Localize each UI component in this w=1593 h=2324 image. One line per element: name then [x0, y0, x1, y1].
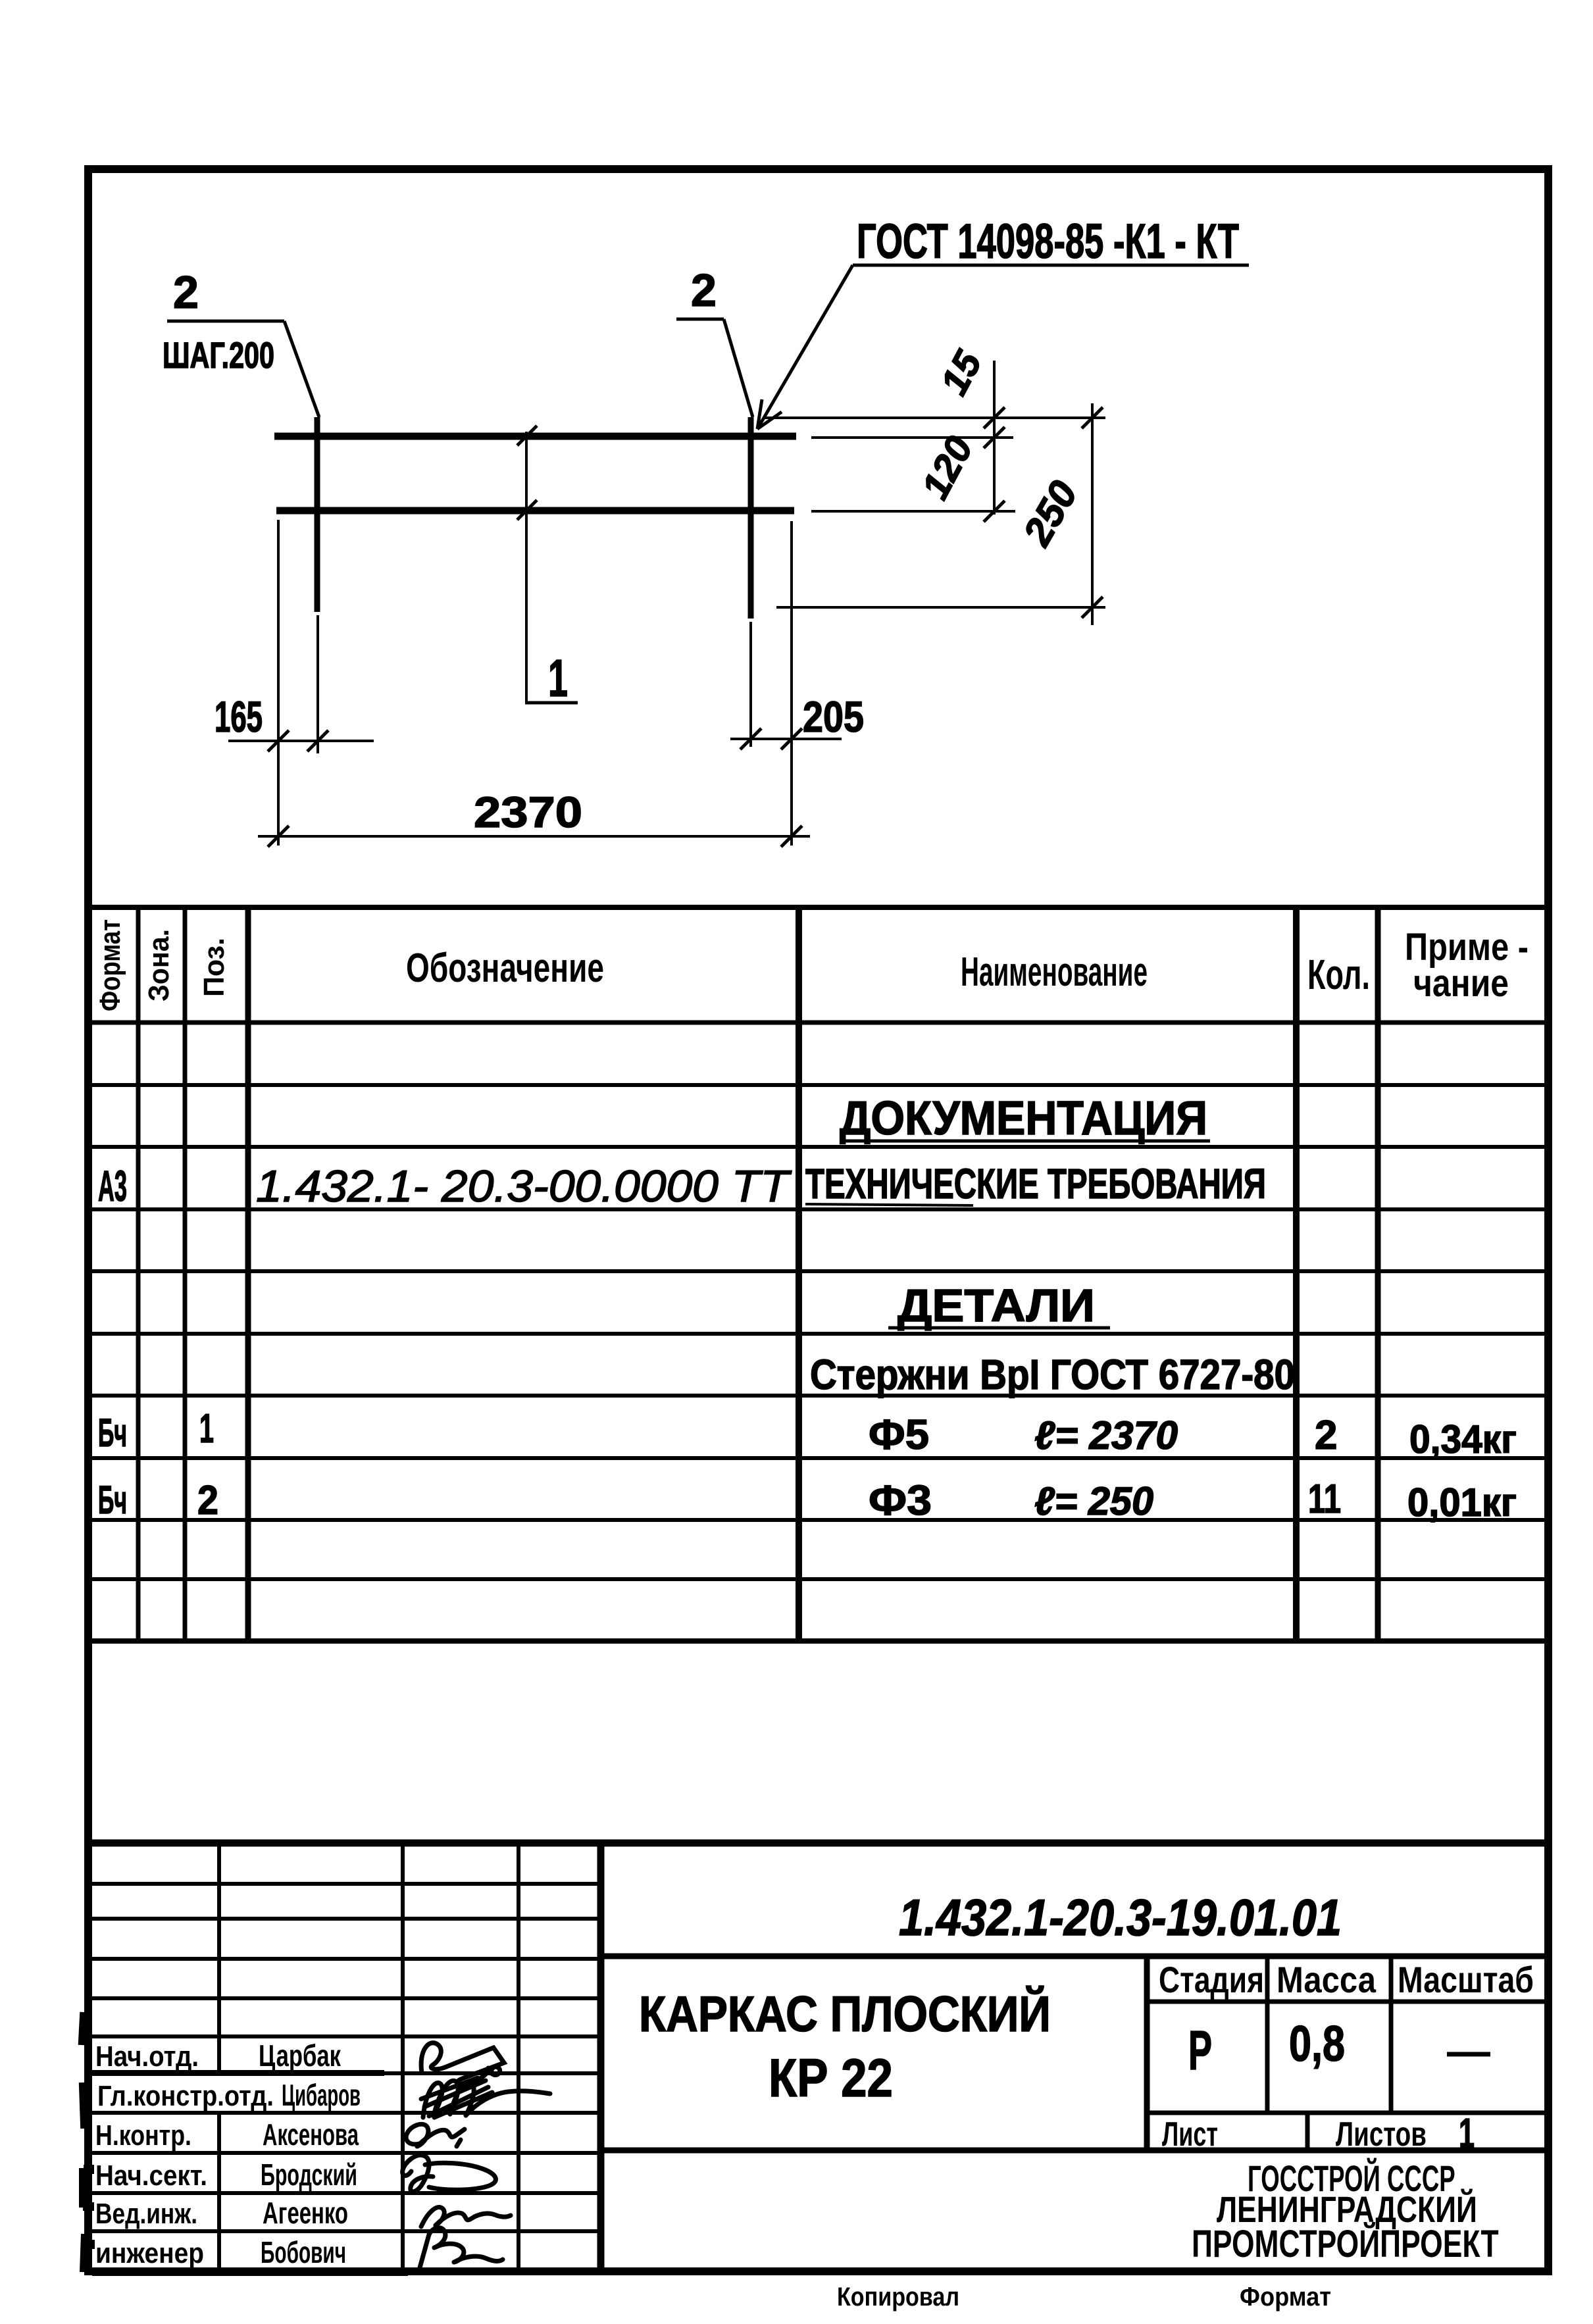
svg-text:2: 2 — [197, 1478, 218, 1523]
svg-text:КР 22: КР 22 — [769, 2048, 893, 2108]
svg-text:Стержни ВрI ГОСТ 6727-80: Стержни ВрI ГОСТ 6727-80 — [810, 1351, 1295, 1398]
svg-text:2: 2 — [691, 265, 717, 316]
svg-text:ДЕТАЛИ: ДЕТАЛИ — [898, 1280, 1095, 1331]
svg-text:2370: 2370 — [474, 788, 582, 836]
svg-text:Бч: Бч — [98, 1411, 127, 1455]
svg-text:ТЕХНИЧЕСКИЕ ТРЕБОВАНИЯ: ТЕХНИЧЕСКИЕ ТРЕБОВАНИЯ — [805, 1160, 1266, 1207]
svg-text:чание: чание — [1413, 962, 1509, 1005]
svg-text:1: 1 — [548, 649, 568, 707]
svg-text:ℓ= 250: ℓ= 250 — [1034, 1479, 1153, 1523]
svg-text:ДОКУМЕНТАЦИЯ: ДОКУМЕНТАЦИЯ — [840, 1092, 1207, 1145]
svg-text:Лист: Лист — [1162, 2115, 1218, 2154]
svg-text:Формат: Формат — [1240, 2283, 1331, 2311]
svg-text:Ф5: Ф5 — [869, 1411, 929, 1458]
svg-text:0,8: 0,8 — [1289, 2016, 1345, 2072]
svg-text:Формат: Формат — [94, 919, 126, 1011]
svg-text:Н.контр.: Н.контр. — [95, 2119, 191, 2152]
svg-text:165: 165 — [215, 692, 263, 741]
svg-text:Нач.сект.: Нач.сект. — [95, 2160, 207, 2192]
svg-text:Агеенко: Агеенко — [263, 2196, 348, 2230]
svg-text:2: 2 — [173, 266, 199, 318]
svg-text:Кол.: Кол. — [1307, 951, 1370, 998]
svg-text:ПРОМСТРОЙПРОЕКТ: ПРОМСТРОЙПРОЕКТ — [1192, 2222, 1499, 2265]
svg-text:Наименование: Наименование — [961, 949, 1148, 995]
svg-text:Ф3: Ф3 — [869, 1477, 932, 1524]
svg-text:2: 2 — [1315, 1413, 1337, 1458]
svg-text:11: 11 — [1308, 1477, 1341, 1522]
svg-text:Бобович: Бобович — [261, 2235, 346, 2269]
svg-text:Зона.: Зона. — [143, 929, 175, 1001]
svg-text:Цибаров: Цибаров — [282, 2078, 361, 2112]
svg-text:Р: Р — [1188, 2019, 1212, 2081]
svg-text:инженер: инженер — [95, 2237, 204, 2269]
svg-text:205: 205 — [803, 692, 864, 741]
svg-text:1: 1 — [199, 1406, 214, 1452]
svg-text:Бч: Бч — [98, 1478, 127, 1522]
svg-text:1: 1 — [1459, 2109, 1475, 2157]
svg-text:Вед.инж.: Вед.инж. — [95, 2198, 197, 2230]
svg-text:Масса: Масса — [1277, 1959, 1377, 2000]
svg-text:Стадия: Стадия — [1159, 1959, 1264, 2000]
svg-text:КАРКАС ПЛОСКИЙ: КАРКАС ПЛОСКИЙ — [639, 1985, 1051, 2042]
svg-text:Гл.констр.отд.: Гл.констр.отд. — [97, 2080, 274, 2112]
svg-text:ℓ= 2370: ℓ= 2370 — [1034, 1413, 1178, 1457]
svg-text:Царбак: Царбак — [259, 2038, 341, 2073]
svg-text:Нач.отд.: Нач.отд. — [95, 2040, 199, 2073]
svg-text:ГОСТ 14098-85 -К1 - КТ: ГОСТ 14098-85 -К1 - КТ — [857, 214, 1239, 268]
svg-text:Поз.: Поз. — [198, 938, 230, 997]
svg-text:ШАГ.200: ШАГ.200 — [163, 334, 274, 376]
svg-text:Бродский: Бродский — [261, 2158, 357, 2192]
svg-text:1.432.1- 20.3-00.0000 ТТ: 1.432.1- 20.3-00.0000 ТТ — [256, 1161, 792, 1211]
svg-text:1.432.1-20.3-19.01.01: 1.432.1-20.3-19.01.01 — [899, 1888, 1342, 1946]
svg-text:Аксенова: Аксенова — [263, 2117, 359, 2152]
svg-text:Копировал: Копировал — [837, 2283, 959, 2311]
svg-text:Обозначение: Обозначение — [406, 946, 604, 991]
svg-text:Листов: Листов — [1336, 2115, 1427, 2154]
svg-text:0,34кг: 0,34кг — [1409, 1417, 1517, 1461]
svg-text:0,01кг: 0,01кг — [1407, 1480, 1517, 1525]
svg-text:А3: А3 — [98, 1161, 127, 1210]
svg-text:Масштаб: Масштаб — [1398, 1959, 1534, 2000]
